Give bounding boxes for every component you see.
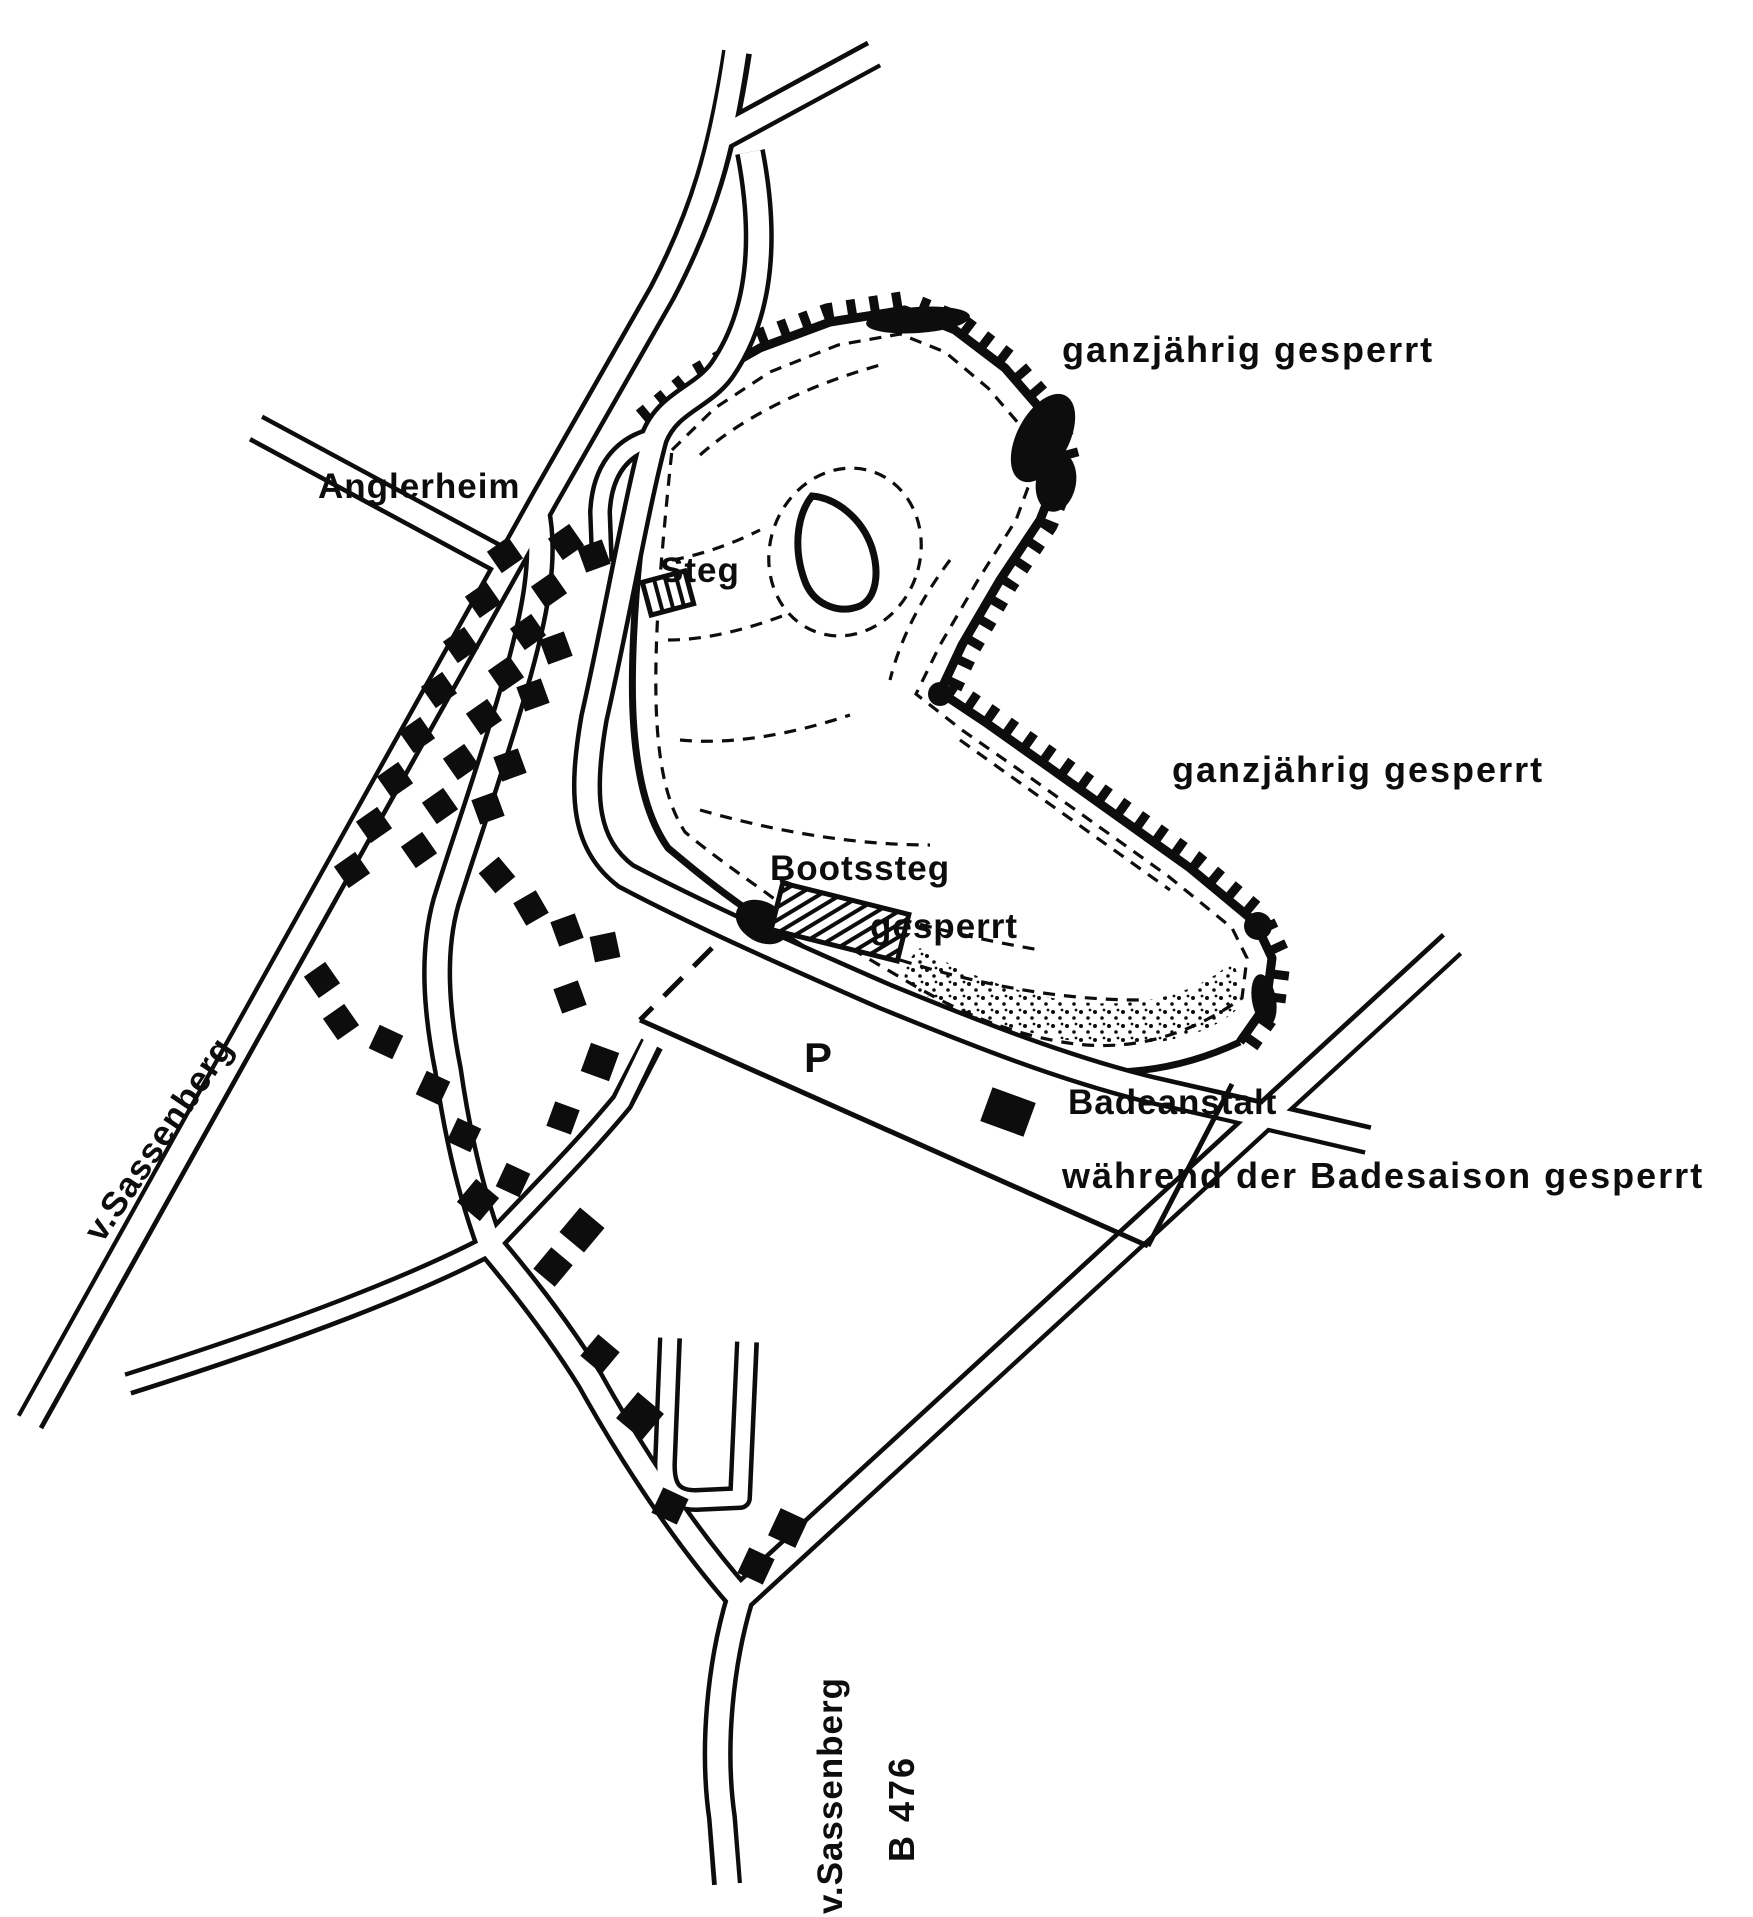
house — [513, 890, 549, 926]
house — [553, 980, 586, 1013]
road-main-sassenberg — [24, 44, 737, 1432]
shore-ink-blob — [928, 682, 952, 706]
road-southeast-street — [490, 1245, 738, 1596]
house — [559, 1207, 604, 1252]
label-bathing-season-note: während der Badesaison gesperrt — [1061, 1155, 1704, 1196]
label-federal-road-b476: B 476 — [881, 1756, 922, 1862]
lake — [632, 303, 1280, 1072]
house — [422, 788, 458, 824]
label-parking: P — [804, 1034, 832, 1081]
house — [550, 913, 583, 946]
house — [546, 1101, 579, 1134]
house — [479, 857, 516, 894]
label-bootssteg-status: gesperrt — [870, 907, 1018, 946]
map-canvas: Anglerheim Steg ganzjährig gesperrt ganz… — [0, 0, 1753, 1917]
house — [581, 1043, 619, 1081]
sketch-map: Anglerheim Steg ganzjährig gesperrt ganz… — [0, 0, 1753, 1917]
house — [304, 962, 340, 998]
house — [323, 1004, 359, 1040]
label-road-from-sassenberg-south: v.Sassenberg — [811, 1677, 850, 1914]
label-anglerheim: Anglerheim — [318, 467, 521, 506]
house — [401, 832, 437, 868]
shore-ink-blob — [1244, 912, 1272, 940]
label-steg: Steg — [660, 551, 740, 590]
badeanstalt-building — [980, 1087, 1036, 1137]
label-bootssteg: Bootssteg — [770, 849, 950, 888]
house — [590, 932, 621, 963]
parking-entrance-edge — [640, 948, 712, 1020]
house — [533, 1247, 572, 1286]
label-closed-year-round-north: ganzjährig gesperrt — [1062, 329, 1434, 370]
label-closed-year-round-east: ganzjährig gesperrt — [1172, 749, 1544, 790]
house — [369, 1025, 404, 1060]
label-badeanstalt: Badeanstalt — [1068, 1083, 1277, 1122]
